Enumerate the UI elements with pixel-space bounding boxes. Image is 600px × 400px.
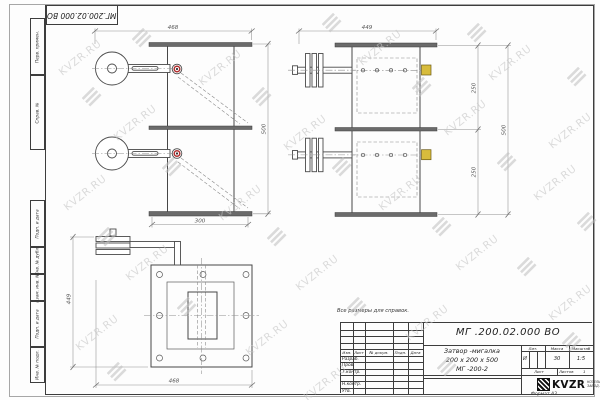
watermark-logo-icon (332, 157, 352, 181)
watermark-logo-icon (412, 77, 432, 101)
watermark-text: KVZR.RU (282, 113, 329, 154)
watermark-logo-icon (162, 157, 182, 181)
watermark-logo-icon (577, 212, 597, 236)
watermark-text: KVZR.RU (532, 163, 579, 204)
watermark-logo-icon (432, 217, 452, 241)
watermark-text: KVZR.RU (244, 318, 291, 359)
watermark-logo-icon (497, 152, 517, 176)
watermark-logo-icon (437, 357, 457, 381)
watermark-logo-icon (347, 297, 367, 321)
watermark-text: KVZR.RU (124, 243, 171, 284)
watermark-text: KVZR.RU (62, 173, 109, 214)
watermark-text: KVZR.RU (112, 103, 159, 144)
watermark-text: KVZR.RU (487, 43, 534, 84)
watermark-logo-icon (132, 28, 152, 52)
watermark-text: KVZR.RU (302, 363, 349, 400)
watermark-text: KVZR.RU (357, 28, 404, 69)
watermark-logo-icon (562, 332, 582, 356)
watermark-logo-icon (567, 67, 587, 91)
watermark-text: KVZR.RU (294, 253, 341, 294)
watermark-text: KVZR.RU (442, 98, 489, 139)
watermark-logo-icon (107, 362, 127, 386)
watermark-logo-icon (467, 23, 487, 47)
watermark-text: KVZR.RU (197, 48, 244, 89)
watermark-text: KVZR.RU (217, 183, 264, 224)
watermark-logo-icon (97, 227, 117, 251)
watermark-text: KVZR.RU (377, 173, 424, 214)
watermark-text: KVZR.RU (74, 313, 121, 354)
watermark-layer: KVZR.RUKVZR.RUKVZR.RUKVZR.RUKVZR.RUKVZR.… (0, 0, 600, 400)
watermark-logo-icon (252, 87, 272, 111)
watermark-logo-icon (517, 257, 537, 281)
watermark-logo-icon (322, 13, 342, 37)
watermark-logo-icon (177, 297, 197, 321)
watermark-text: KVZR.RU (454, 233, 501, 274)
drawing-sheet: Перв. примен. Справ. № Подп. и дата Инв.… (0, 0, 600, 400)
watermark-text: KVZR.RU (547, 283, 594, 324)
watermark-text: KVZR.RU (57, 38, 104, 79)
watermark-logo-icon (82, 87, 102, 111)
watermark-text: KVZR.RU (404, 303, 451, 344)
watermark-text: KVZR.RU (547, 111, 594, 152)
watermark-logo-icon (267, 227, 287, 251)
